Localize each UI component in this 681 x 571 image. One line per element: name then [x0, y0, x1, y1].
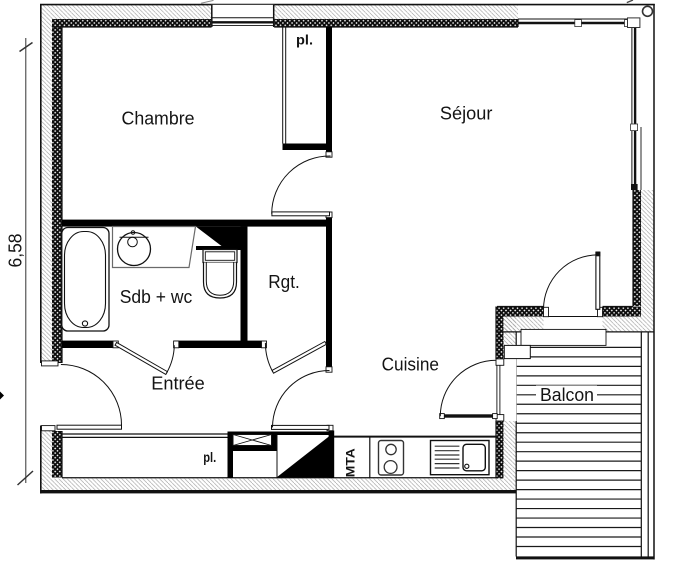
- svg-text:Rgt.: Rgt.: [268, 272, 300, 292]
- svg-text:Cuisine: Cuisine: [382, 355, 439, 375]
- svg-text:Balcon: Balcon: [540, 385, 594, 405]
- svg-text:6,58: 6,58: [6, 234, 26, 268]
- svg-text:Séjour: Séjour: [440, 104, 493, 124]
- svg-text:pl.: pl.: [296, 33, 313, 48]
- svg-text:Chambre: Chambre: [122, 108, 195, 128]
- svg-text:Sdb + wc: Sdb + wc: [120, 287, 193, 307]
- svg-text:pl.: pl.: [203, 450, 216, 465]
- svg-text:Entrée: Entrée: [151, 373, 205, 393]
- svg-text:MTA: MTA: [344, 448, 358, 477]
